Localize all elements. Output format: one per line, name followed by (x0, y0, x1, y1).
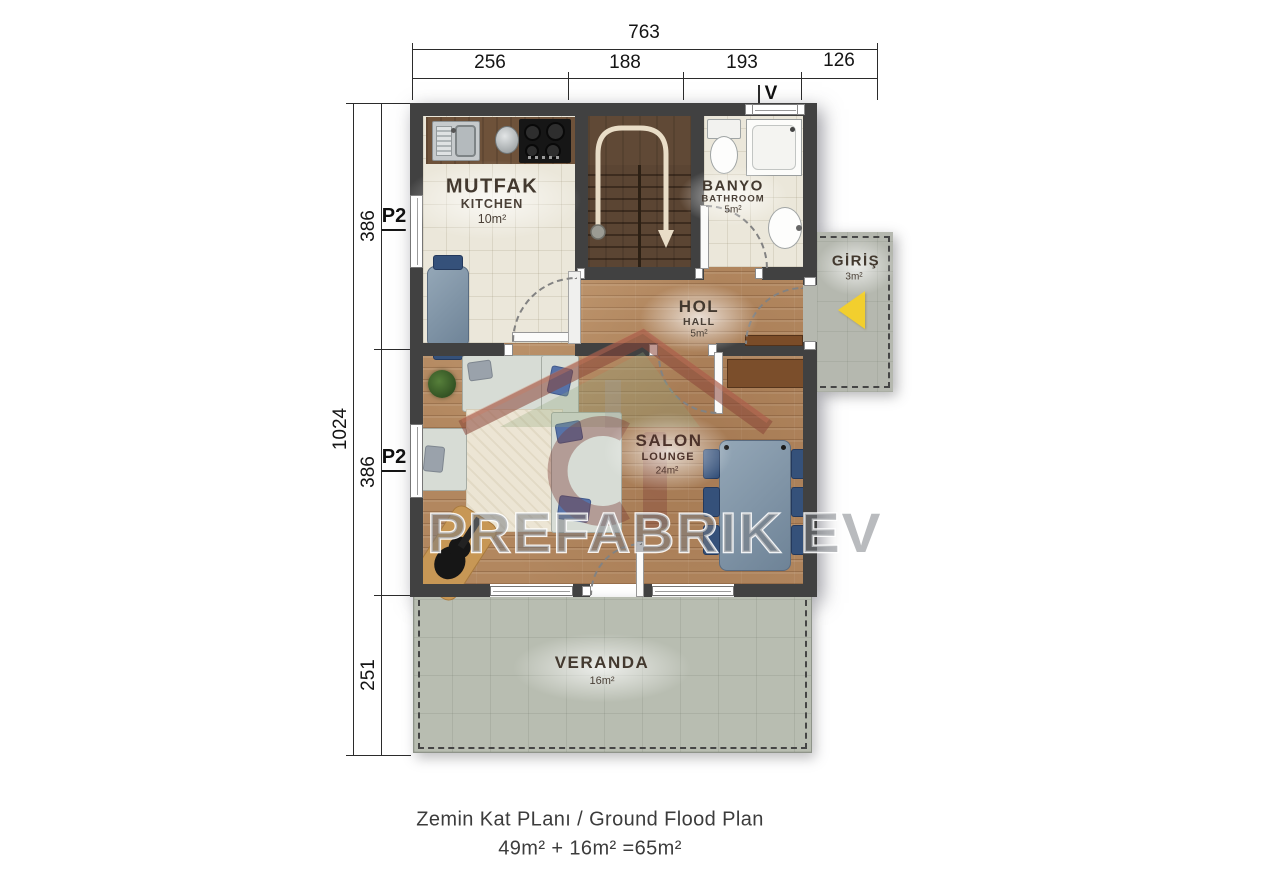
dim-tick (374, 349, 411, 350)
salon-window-p2 (410, 424, 423, 498)
dining-chair (703, 525, 720, 555)
room-label-bathroom: BANYO (702, 178, 764, 195)
burner (546, 122, 565, 141)
room-sublabel-bathroom: BATHROOM (701, 194, 764, 205)
room-label-salon: SALON (636, 431, 703, 451)
dim-tick (568, 72, 569, 100)
frame-cap (804, 341, 816, 350)
dim-left-total: 1024 (330, 408, 352, 450)
dim-tick (683, 72, 684, 100)
dining-chair (703, 449, 720, 479)
wall-kitchen-stairs (575, 103, 588, 280)
table-detail (781, 445, 786, 450)
room-label-entrance: GİRİŞ (832, 253, 880, 270)
sideboard (727, 359, 804, 388)
wall-right (803, 103, 817, 285)
bathroom-vent-window (752, 104, 799, 115)
dining-table (719, 440, 791, 571)
veranda-window-p4-right (652, 586, 734, 596)
armchair-pillow (423, 445, 446, 473)
room-area-kitchen: 10m² (478, 212, 506, 226)
sofa-pillow (467, 359, 493, 381)
wall-bottom (410, 584, 490, 597)
vent-tag-v: V (765, 83, 778, 105)
dining-chair (703, 487, 720, 517)
sink-faucet (796, 225, 802, 231)
sink-basin (455, 125, 476, 157)
dim-tick (801, 72, 802, 100)
plan-area-equation: 49m² + 16m² =65m² (498, 838, 682, 861)
dim-top-total: 763 (628, 22, 660, 44)
shower-drain (790, 127, 795, 132)
dim-line-left-total (353, 103, 354, 755)
room-sublabel-hall: HALL (683, 316, 715, 328)
wall-left (410, 103, 423, 195)
wall-bottom (734, 584, 817, 597)
room-area-bathroom: 5m² (724, 205, 741, 216)
room-sublabel-salon: LOUNGE (641, 451, 694, 463)
room-area-salon: 24m² (656, 466, 679, 477)
room-area-hall: 5m² (690, 329, 707, 340)
window-tag-p2-upper: P2 (382, 205, 406, 231)
wall-kitchen-salon (410, 343, 504, 356)
dim-tick (412, 43, 413, 100)
window-tag-p2-lower: P2 (382, 446, 406, 472)
shower-tray-inner (752, 125, 796, 170)
dim-top-seg-1: 256 (474, 52, 506, 74)
room-label-veranda: VERANDA (555, 653, 650, 673)
room-label-kitchen: MUTFAK (446, 176, 538, 199)
dim-line-top-segments (412, 78, 877, 79)
tag-tick (758, 85, 760, 104)
veranda-window-p4-left (490, 586, 573, 596)
wall-left (410, 498, 423, 597)
dim-top-seg-4: 126 (823, 50, 855, 72)
staircase-direction-arrow (588, 116, 691, 267)
dim-top-seg-3: 193 (726, 52, 758, 74)
floor-plan-page: 763 256 188 193 126 1024 386 386 251 P2 … (0, 0, 1280, 874)
sink-faucet (451, 128, 456, 133)
room-sublabel-kitchen: KITCHEN (461, 197, 524, 211)
frame-cap (755, 268, 763, 279)
dim-tick (374, 595, 411, 596)
toilet-bowl (710, 136, 738, 174)
frame-cap (649, 344, 658, 356)
room-label-hall: HOL (679, 297, 719, 317)
frame-cap (797, 104, 805, 115)
kitchen-table (427, 266, 469, 348)
table-detail (724, 445, 729, 450)
sofa-pillow (556, 495, 591, 523)
dim-left-seg-2: 386 (358, 456, 380, 488)
dim-tick (877, 43, 878, 100)
wall-hall-salon (575, 343, 658, 356)
burner (524, 124, 541, 141)
frame-cap (695, 268, 703, 279)
wall-stairs-hall (575, 267, 704, 280)
cooktop-controls (528, 156, 560, 159)
dim-tick (346, 103, 411, 104)
frame-cap (804, 277, 816, 286)
potted-plant (428, 370, 456, 398)
room-area-entrance: 3m² (845, 272, 862, 283)
dim-left-seg-1: 386 (358, 210, 380, 242)
dim-top-seg-2: 188 (609, 52, 641, 74)
wall-right (803, 342, 817, 597)
trash-bin (495, 126, 519, 154)
plan-title: Zemin Kat PLanı / Ground Flood Plan (416, 809, 764, 832)
dim-line-top-total (412, 49, 877, 50)
frame-cap (745, 104, 753, 115)
dim-line-left-segments (381, 103, 382, 755)
wall-bathroom-hall (762, 267, 804, 280)
entrance-door-opening (803, 285, 817, 342)
dim-left-seg-3: 251 (358, 659, 380, 691)
frame-cap (504, 344, 513, 356)
sink-drainboard (436, 126, 452, 156)
kitchen-chair (433, 255, 463, 270)
room-area-veranda: 16m² (589, 675, 614, 687)
kitchen-window-p2 (410, 195, 423, 268)
dim-tick (346, 755, 411, 756)
entrance-direction-arrow (838, 291, 865, 329)
rug (466, 409, 563, 532)
